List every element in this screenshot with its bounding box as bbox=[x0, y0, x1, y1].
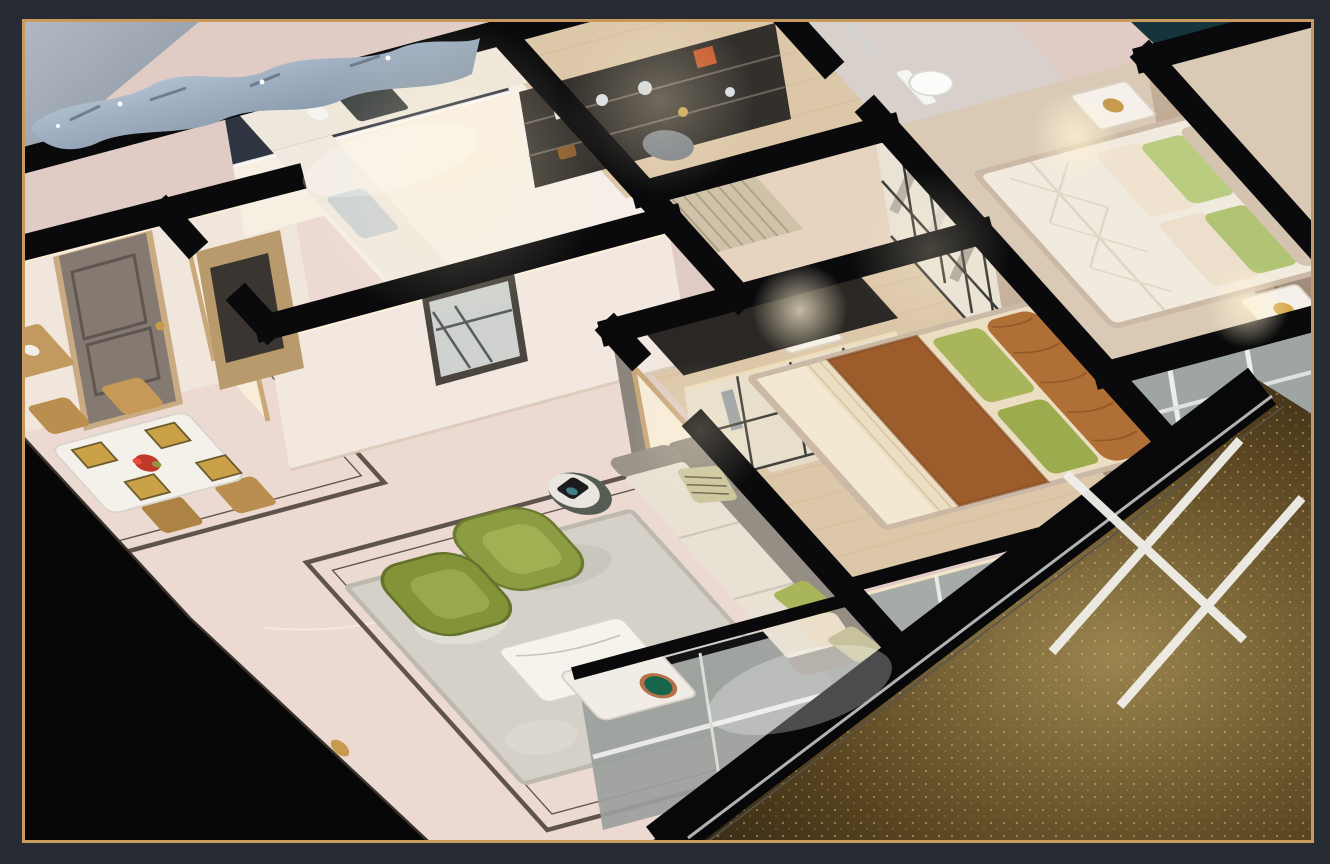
door-handle bbox=[156, 322, 165, 331]
bedroom2-lamp-glow bbox=[1030, 90, 1120, 180]
master-lamp-glow bbox=[752, 262, 848, 358]
bedroom2-lamp-glow bbox=[1205, 264, 1289, 348]
framed-model-photo bbox=[0, 0, 1330, 864]
